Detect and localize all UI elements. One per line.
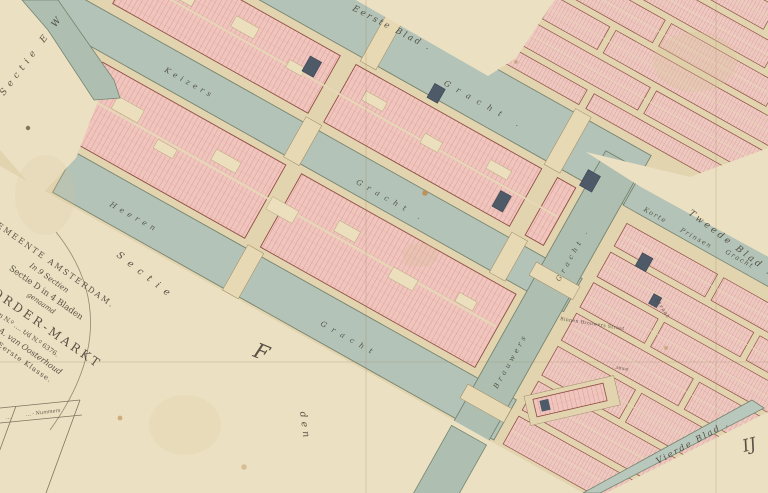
historic-map-canvas: GEMEENTE AMSTERDAM. In 9 Sectien Sectie … bbox=[0, 0, 768, 493]
map-svg: GEMEENTE AMSTERDAM. In 9 Sectien Sectie … bbox=[0, 0, 768, 493]
table-col1-header: … bbox=[6, 414, 12, 421]
